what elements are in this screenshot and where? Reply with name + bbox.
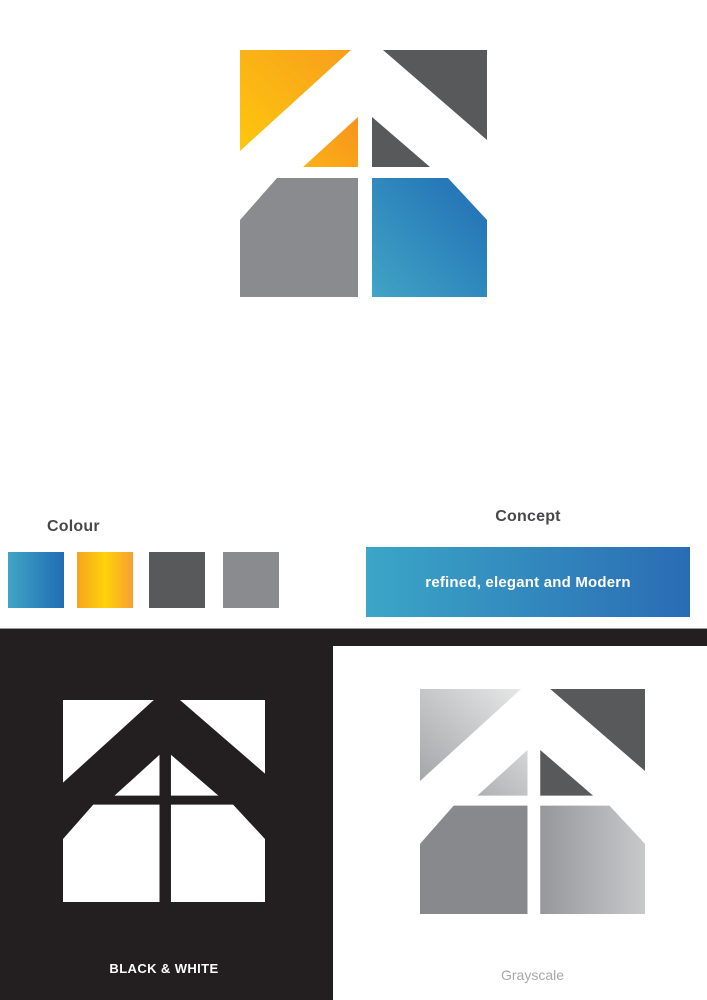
logo-small-right-triangle — [372, 117, 430, 167]
logo-top-right-triangle — [383, 50, 487, 140]
concept-tagline-bar: refined, elegant and Modern — [366, 547, 690, 617]
logo-bottom-right-pentagon — [372, 178, 487, 297]
logo-top-right-triangle — [550, 689, 645, 771]
logo-top-right-triangle — [180, 700, 265, 774]
swatch-blue-gradient — [8, 552, 64, 608]
logo-brand-sheet: Colour Concept refined, elegant and Mode… — [0, 0, 707, 1000]
black-white-caption: BLACK & WHITE — [63, 961, 265, 976]
logo-bottom-left-pentagon — [63, 805, 160, 902]
swatch-yellow-orange-gradient — [77, 552, 133, 608]
logo-small-right-triangle — [540, 750, 593, 796]
black-white-panel: BLACK & WHITE Grayscale — [0, 628, 707, 1000]
concept-section-heading: Concept — [366, 508, 690, 526]
logo-bottom-left-pentagon — [240, 178, 358, 297]
logo-small-left-triangle — [115, 755, 160, 796]
colour-section-heading: Colour — [47, 518, 100, 536]
logo-small-right-triangle — [171, 755, 218, 796]
logo-bottom-left-pentagon — [420, 806, 527, 914]
colour-swatch-row — [8, 552, 298, 608]
grayscale-caption: Grayscale — [420, 967, 645, 983]
grayscale-panel: Grayscale — [333, 646, 707, 1000]
logo-black-white-version — [63, 700, 265, 902]
logo-colour-version — [240, 50, 487, 297]
logo-top-left-triangle — [63, 700, 154, 783]
logo-top-left-triangle — [420, 689, 521, 781]
logo-bottom-right-pentagon — [171, 805, 265, 902]
logo-small-left-triangle — [303, 117, 358, 167]
logo-small-left-triangle — [477, 750, 527, 796]
concept-tagline-text: refined, elegant and Modern — [425, 574, 630, 591]
logo-grayscale-version — [420, 689, 645, 914]
swatch-medium-gray — [223, 552, 279, 608]
logo-top-left-triangle — [240, 50, 351, 151]
swatch-dark-gray — [149, 552, 205, 608]
logo-bottom-right-pentagon — [540, 806, 645, 914]
